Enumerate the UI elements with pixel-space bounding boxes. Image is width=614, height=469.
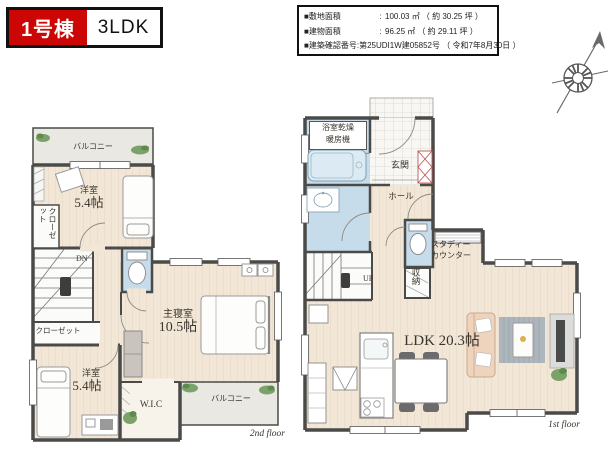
building-area-row: ■建物面積 : 96.25 ㎡ （ 約 29.11 坪 ） xyxy=(304,25,493,40)
ldk-label: LDK 20.3帖 xyxy=(376,334,508,350)
closet-side-label: クローゼット xyxy=(37,207,57,239)
wic-label: W.I.C xyxy=(126,401,176,411)
study-counter-label: スタディー カウンター xyxy=(431,240,471,261)
stairs-dn-label: DN xyxy=(76,255,88,263)
bed-icon xyxy=(37,367,70,437)
storage-label: 収納 xyxy=(406,268,422,300)
bath-heater-label: 浴室乾燥 暖房機 xyxy=(309,121,367,150)
site-area-row: ■敷地面積 : 100.03 ㎡ （ 約 30.25 坪 ） xyxy=(304,10,493,25)
confirmation-number-label: ■建築確認番号 xyxy=(304,39,357,54)
dining-table-icon xyxy=(395,352,447,412)
first-floor-caption: 1st floor xyxy=(495,421,580,431)
property-info-box: ■敷地面積 : 100.03 ㎡ （ 約 30.25 坪 ） ■建物面積 : 9… xyxy=(297,5,499,56)
building-area-label: ■建物面積 xyxy=(304,25,376,40)
balcony-label: バルコニー xyxy=(53,143,133,151)
separator: : xyxy=(376,10,385,25)
study-counter-line1: スタディー xyxy=(431,240,471,251)
hall-label: ホール xyxy=(376,192,426,201)
floorplan-sheet: 1号棟 3LDK ■敷地面積 : 100.03 ㎡ （ 約 30.25 坪 ） … xyxy=(0,0,614,469)
confirmation-number-value: 第25UDI1W建05852号 （ 令和7年8月30日 ） xyxy=(359,39,520,54)
refrigerator-icon xyxy=(333,367,357,390)
toilet-tank-icon xyxy=(127,252,147,260)
toilet-room-2f xyxy=(122,248,152,292)
bath-heater-line1: 浴室乾燥 xyxy=(310,122,366,134)
tv-board-icon xyxy=(550,314,574,368)
study-counter-line2: カウンター xyxy=(431,251,471,262)
washbasin-icon xyxy=(307,188,339,212)
second-floor-caption: 2nd floor xyxy=(205,430,285,440)
master-bedroom-name: 主寝室 xyxy=(148,310,208,321)
bedroom-a-size: 5.4帖 xyxy=(59,196,119,210)
balcony-bottom-label: バルコニー xyxy=(191,395,271,403)
toilet-bowl-icon xyxy=(129,262,146,284)
desk-icon xyxy=(82,415,118,435)
bed-icon xyxy=(123,176,153,238)
dresser-icon xyxy=(242,264,273,276)
site-area-label: ■敷地面積 xyxy=(304,10,376,25)
building-area-value: 96.25 ㎡ （ 約 29.11 坪 ） xyxy=(385,25,493,40)
bedroom-b-size: 5.4帖 xyxy=(57,379,117,393)
layout-type-label: 3LDK xyxy=(87,10,160,45)
site-area-value: 100.03 ㎡ （ 約 30.25 坪 ） xyxy=(385,10,493,25)
building-badge: 1号棟 3LDK xyxy=(6,7,163,48)
shelf-icon xyxy=(34,167,44,201)
separator: : xyxy=(376,25,385,40)
master-bedroom-size: 10.5帖 xyxy=(138,321,218,336)
pantry-icon xyxy=(308,363,326,423)
toilet-icon xyxy=(409,224,427,255)
closet-lower-label: クローゼット xyxy=(28,327,88,335)
building-number-label: 1号棟 xyxy=(9,10,87,45)
chest-icon xyxy=(124,331,142,377)
cupboard-icon xyxy=(309,305,328,323)
stairs-up-label: UP xyxy=(363,275,373,283)
bath-heater-line2: 暖房機 xyxy=(310,134,366,146)
confirmation-number-row: ■建築確認番号 : 第25UDI1W建05852号 （ 令和7年8月30日 ） xyxy=(304,39,493,54)
bathtub-icon xyxy=(308,150,366,181)
entrance-label: 玄関 xyxy=(379,161,421,170)
